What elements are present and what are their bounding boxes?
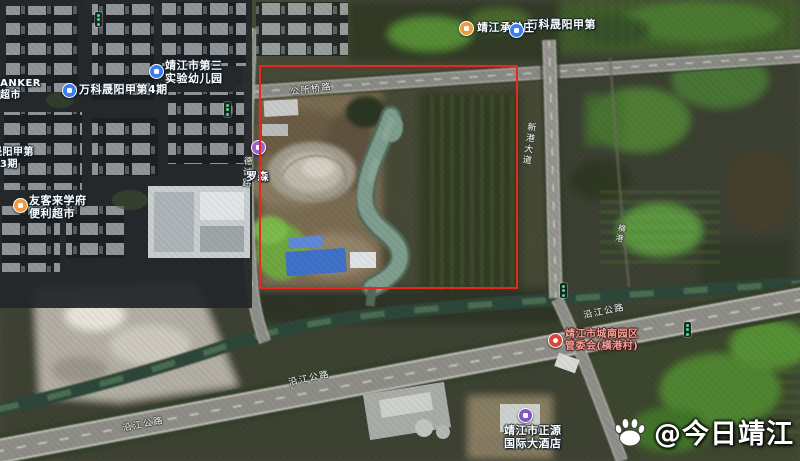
baidu-paw-icon <box>612 416 648 448</box>
poi-kindergarten-line2[interactable]: 实验幼儿园 <box>165 73 223 85</box>
poi-chengnan-badge-line1[interactable]: 靖江市城南园区 <box>565 329 639 341</box>
poi-jingjiang-chenghan[interactable]: 靖江承瀚庄 <box>477 22 535 34</box>
residential-poi-icon[interactable] <box>509 23 524 38</box>
poi-banker-line2[interactable]: 超市 <box>0 90 21 102</box>
map-canvas[interactable]: 万科晟阳甲第 靖江承瀚庄 罗森 靖江市第三 实验幼儿园 万科晟阳甲第4期 BAN… <box>0 0 800 461</box>
poi-edge-estate-line2[interactable]: 3期 <box>0 159 18 171</box>
poi-chengnan-badge-line2[interactable]: 管委会(横港村) <box>565 341 638 353</box>
poi-hotel-line2[interactable]: 国际大酒店 <box>504 438 562 450</box>
poi-youkelai-line2[interactable]: 便利超市 <box>29 208 75 220</box>
highlight-rectangle <box>259 65 518 289</box>
watermark: @今日靖江 <box>612 412 794 451</box>
traffic-light-icon <box>224 102 231 117</box>
poi-banker-line1[interactable]: BANKER <box>0 78 41 90</box>
poi-wanke-shengyang[interactable]: 万科晟阳甲第 <box>527 19 596 31</box>
poi-hotel-line1[interactable]: 靖江市正源 <box>504 425 562 437</box>
traffic-light-icon <box>560 283 567 298</box>
residential-poi-icon[interactable] <box>62 83 77 98</box>
watermark-handle: @今日靖江 <box>654 412 794 451</box>
hotel-poi-icon[interactable] <box>518 408 533 423</box>
poi-kindergarten-line1[interactable]: 靖江市第三 <box>165 60 223 72</box>
poi-wanke-phase4[interactable]: 万科晟阳甲第4期 <box>79 84 168 96</box>
government-poi-icon[interactable] <box>548 333 563 348</box>
kindergarten-poi-icon[interactable] <box>149 64 164 79</box>
poi-youkelai-line1[interactable]: 友客来学府 <box>29 195 87 207</box>
convenience-store-poi-icon[interactable] <box>13 198 28 213</box>
traffic-light-icon <box>95 12 102 27</box>
traffic-light-icon <box>684 322 691 337</box>
restaurant-poi-icon[interactable] <box>459 21 474 36</box>
poi-edge-estate-line1[interactable]: 晟阳甲第 <box>0 147 34 159</box>
